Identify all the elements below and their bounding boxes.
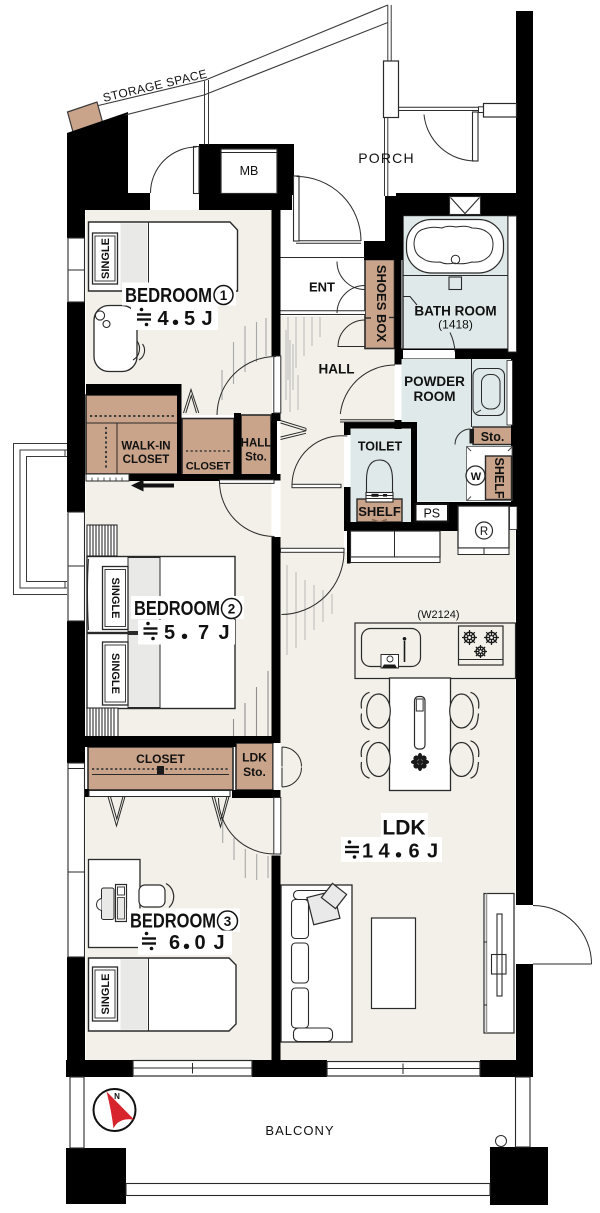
svg-text:J: J xyxy=(213,932,224,954)
svg-text:ENT: ENT xyxy=(309,280,335,295)
svg-text:(W2124): (W2124) xyxy=(417,609,459,621)
svg-text:MB: MB xyxy=(240,164,259,178)
svg-text:SINGLE: SINGLE xyxy=(100,238,112,279)
svg-text:ROOM: ROOM xyxy=(414,389,456,404)
svg-text:Sto.: Sto. xyxy=(481,430,505,444)
svg-text:HALL: HALL xyxy=(319,362,355,377)
svg-text:BATH ROOM: BATH ROOM xyxy=(414,304,496,319)
svg-text:PS: PS xyxy=(423,507,440,521)
svg-text:0: 0 xyxy=(194,932,205,954)
svg-text:POWDER: POWDER xyxy=(404,374,465,389)
svg-text:4: 4 xyxy=(378,841,390,863)
svg-text:R: R xyxy=(480,526,488,538)
svg-text:W: W xyxy=(471,471,482,483)
svg-text:CLOSET: CLOSET xyxy=(136,752,185,766)
svg-text:N: N xyxy=(114,1092,120,1101)
svg-text:(1418): (1418) xyxy=(438,318,473,332)
svg-text:5: 5 xyxy=(184,308,195,330)
svg-text:3: 3 xyxy=(224,914,232,929)
svg-text:SINGLE: SINGLE xyxy=(100,974,112,1015)
svg-text:SHELF: SHELF xyxy=(492,458,506,499)
svg-text:LDK: LDK xyxy=(242,751,267,765)
svg-text:BEDROOM: BEDROOM xyxy=(125,285,212,307)
svg-text:SHOES BOX: SHOES BOX xyxy=(374,265,389,343)
svg-text:1: 1 xyxy=(220,288,228,303)
svg-text:1: 1 xyxy=(362,841,373,863)
svg-text:BALCONY: BALCONY xyxy=(265,1123,334,1138)
svg-text:6: 6 xyxy=(408,841,419,863)
svg-text:6: 6 xyxy=(169,932,180,954)
svg-text:WALK-IN: WALK-IN xyxy=(121,441,170,453)
svg-text:SHELF: SHELF xyxy=(358,504,401,519)
svg-text:CLOSET: CLOSET xyxy=(186,461,231,473)
svg-text:4: 4 xyxy=(157,308,169,330)
svg-text:PORCH: PORCH xyxy=(358,150,415,166)
svg-text:Sto.: Sto. xyxy=(245,452,267,464)
svg-text:SINGLE: SINGLE xyxy=(109,578,121,619)
svg-text:5: 5 xyxy=(164,622,175,644)
svg-text:BEDROOM: BEDROOM xyxy=(130,911,216,933)
svg-text:TOILET: TOILET xyxy=(358,440,403,454)
svg-text:7: 7 xyxy=(198,622,209,644)
svg-text:SINGLE: SINGLE xyxy=(109,653,121,694)
svg-text:J: J xyxy=(201,308,212,330)
svg-text:2: 2 xyxy=(228,602,236,617)
svg-text:CLOSET: CLOSET xyxy=(123,454,170,466)
svg-text:Sto.: Sto. xyxy=(243,765,266,779)
svg-text:J: J xyxy=(427,841,438,863)
svg-text:LDK: LDK xyxy=(382,817,425,840)
svg-text:BEDROOM: BEDROOM xyxy=(134,598,220,620)
svg-text:J: J xyxy=(218,622,229,644)
svg-text:HALL: HALL xyxy=(241,438,272,450)
